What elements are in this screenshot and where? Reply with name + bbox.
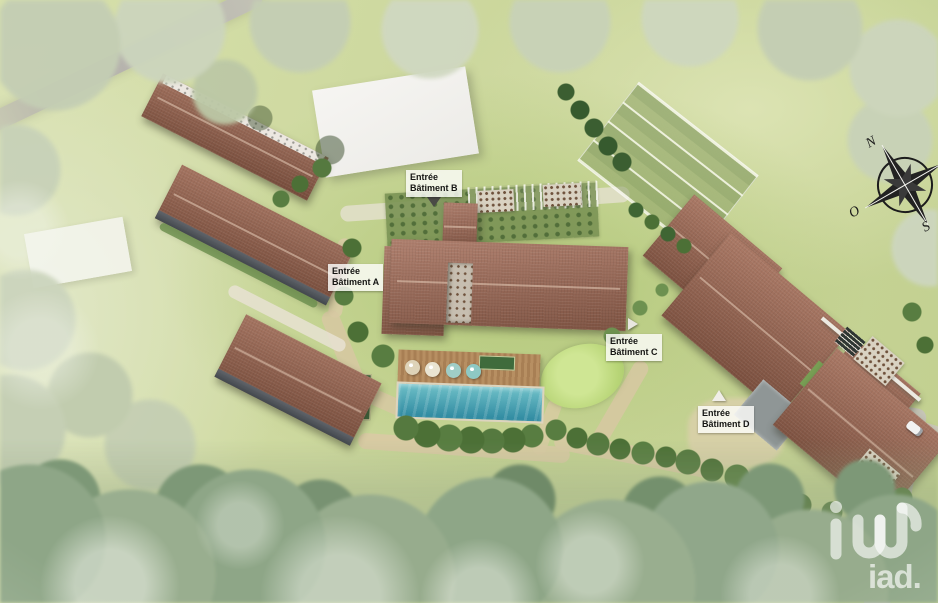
parasol [466,364,481,379]
label-line: Entrée [332,266,379,277]
label-line: Entrée [610,336,658,347]
label-entrance-c: Entrée Bâtiment C [606,334,662,361]
swimming-pool [395,381,544,423]
label-line: Entrée [702,408,750,419]
parasol [405,360,420,375]
label-entrance-d: Entrée Bâtiment D [698,406,754,433]
label-line: Entrée [410,172,458,183]
logo-i-dot [830,501,842,513]
parasol [446,363,461,378]
patio-north-2 [542,183,581,207]
label-entrance-a: Entrée Bâtiment A [328,264,383,291]
spa-pad [479,355,515,370]
building-b-roof [389,239,629,331]
parasol [425,362,440,377]
site-plan-rendering: Entrée Bâtiment B Entrée Bâtiment A Entr… [0,0,938,603]
label-line: Bâtiment A [332,277,379,288]
label-line: Bâtiment C [610,347,658,358]
marker-entrance-d [712,390,726,401]
label-entrance-b: Entrée Bâtiment B [406,170,462,197]
brand-wordmark: iad. [868,560,921,593]
compass-south-label: S [920,219,934,235]
brand-watermark: iad. [826,498,938,603]
compass-west-label: O [847,203,863,221]
label-line: Bâtiment D [702,419,750,430]
label-line: Bâtiment B [410,183,458,194]
marker-entrance-c [628,318,638,330]
compass-north-label: N [863,133,880,151]
inner-courtyard [446,263,473,324]
logo-d-bowl [880,508,902,553]
compass-rose: N O S [845,122,938,242]
patio-north-1 [477,189,514,213]
brand-logo-glyph [826,498,930,562]
marker-entrance-b [427,197,441,207]
forest-band-south [0,440,938,603]
